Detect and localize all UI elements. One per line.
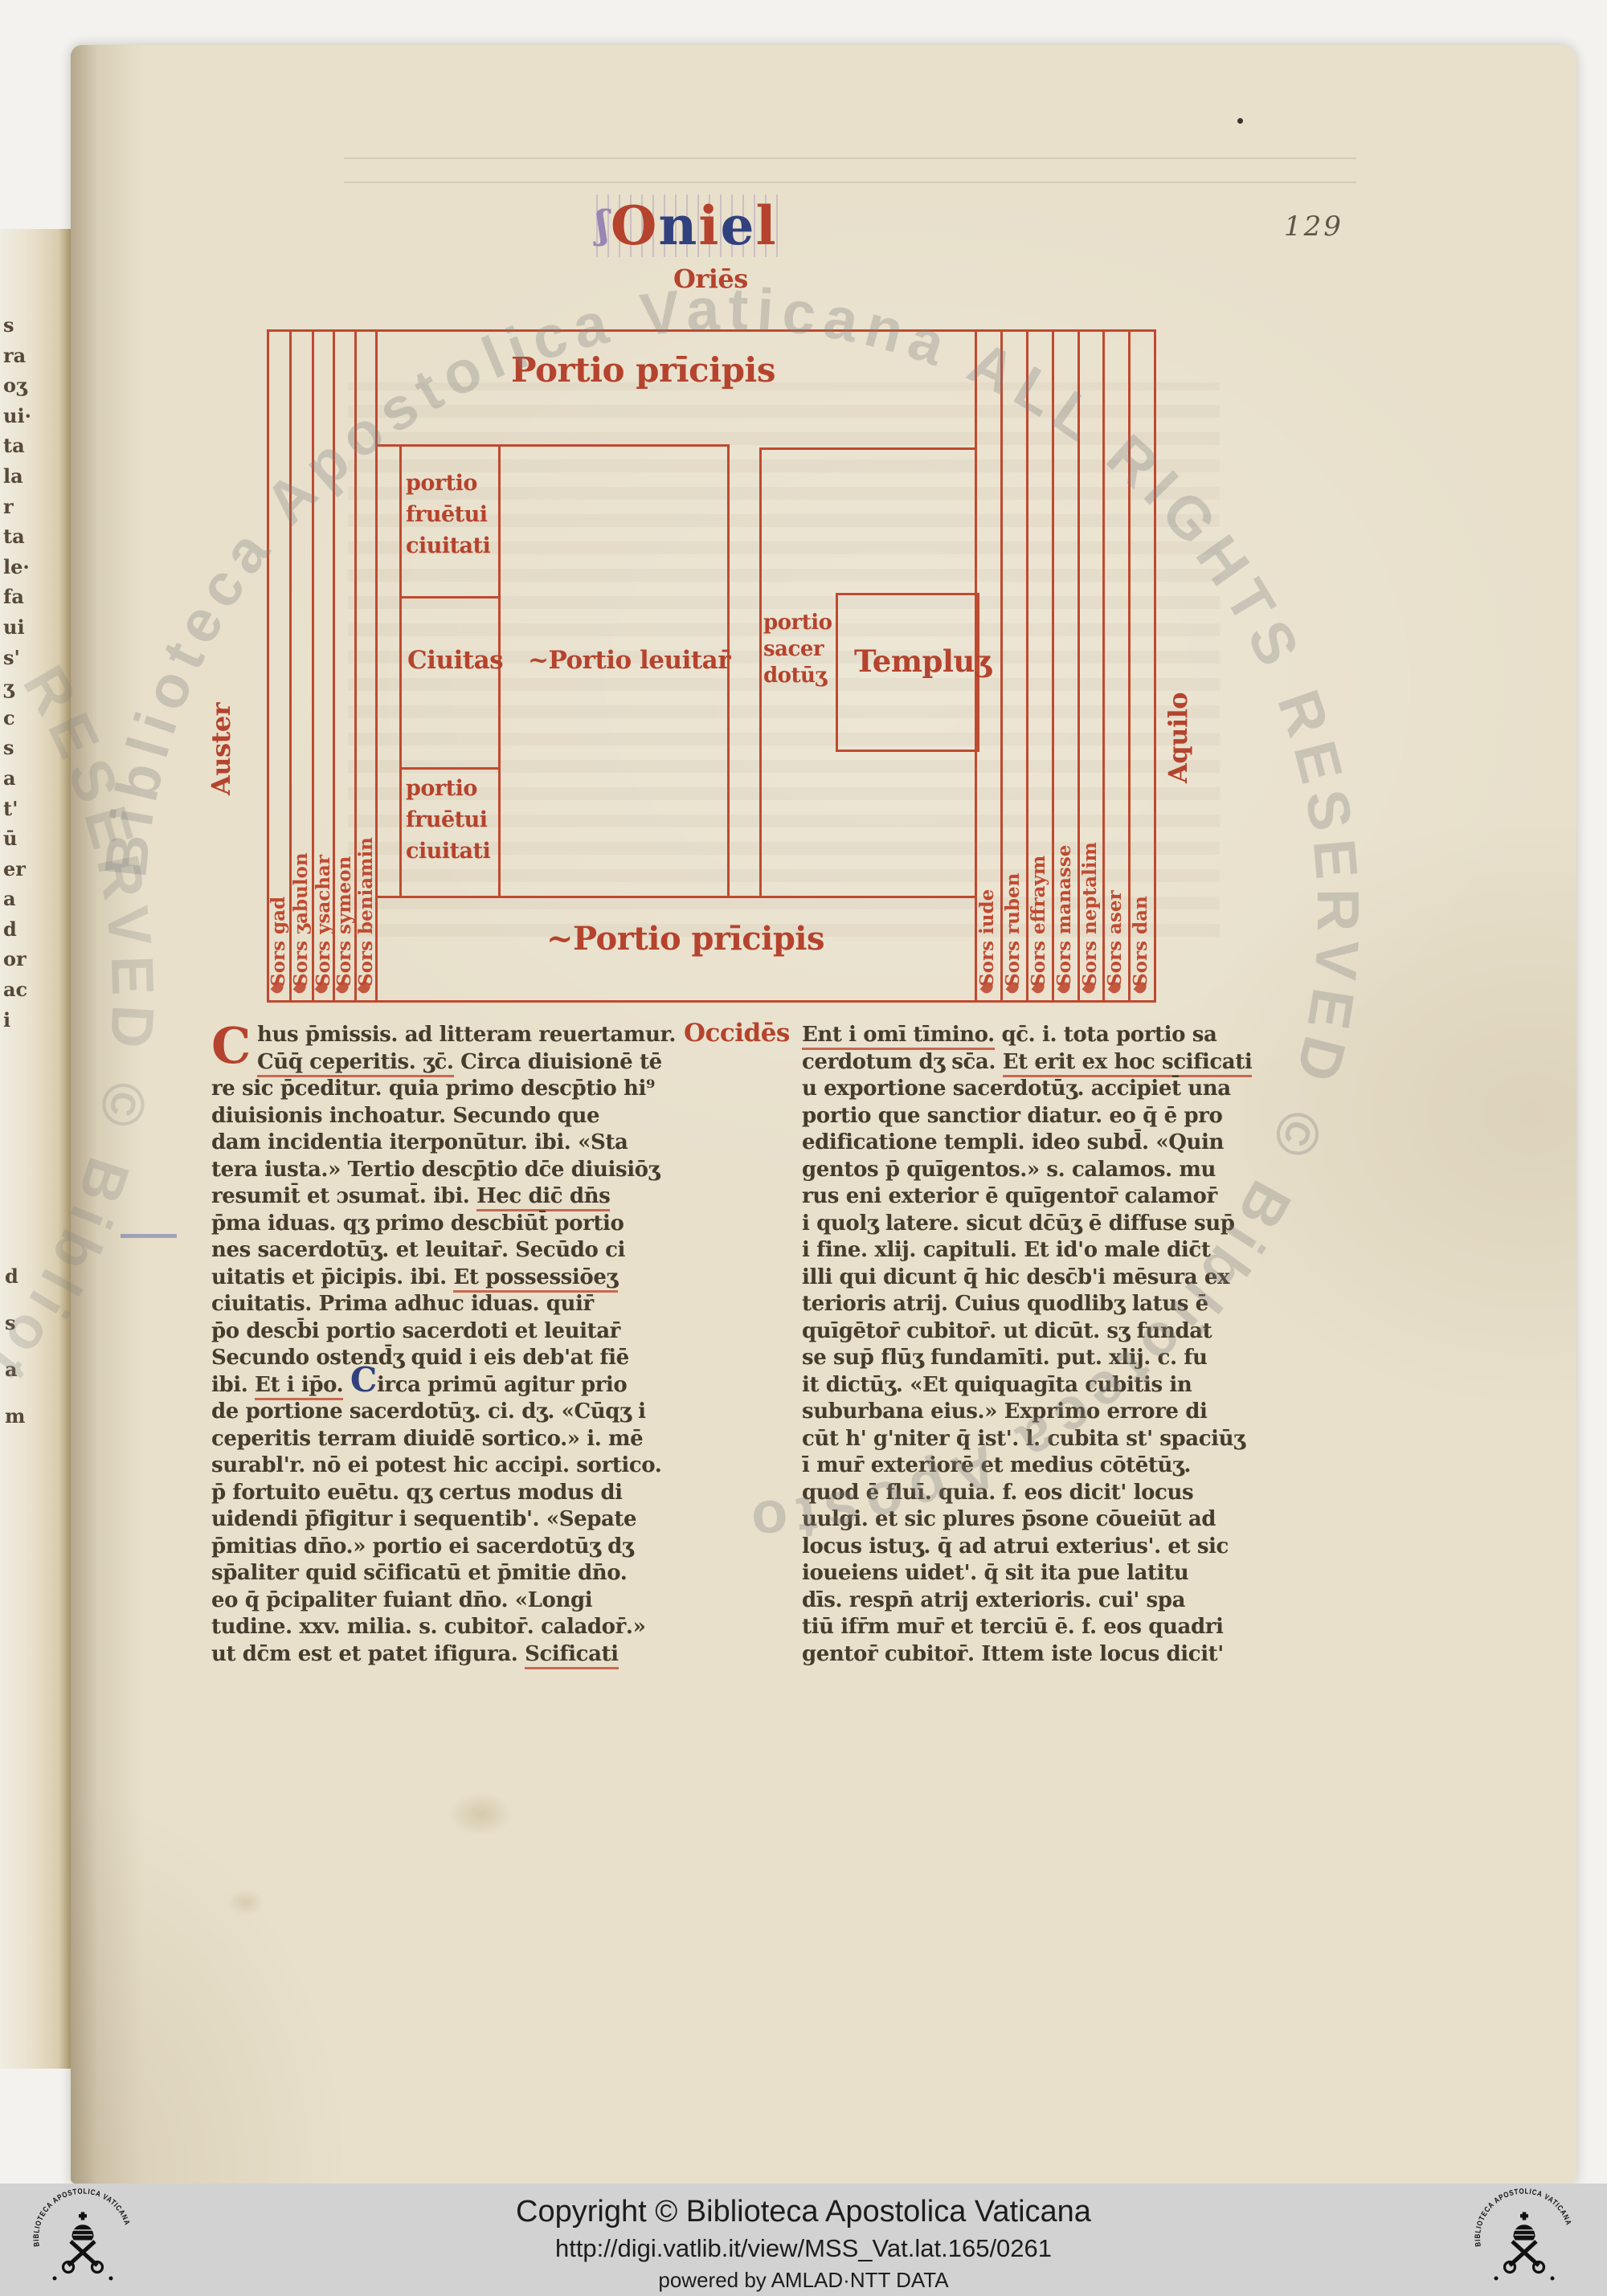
- diagram-label-oriens: Oriēs: [673, 264, 748, 294]
- margin-mark: [121, 1234, 177, 1238]
- diagram-line: [399, 444, 402, 896]
- ornate-letter: n: [658, 194, 698, 257]
- parchment-page: 129 ʃOniel Oriēs: [71, 45, 1576, 2184]
- ornate-letter: i: [698, 194, 720, 257]
- text-line: sp̄aliter quid sc̄ificatū et p̄mitie dn̄…: [211, 1560, 790, 1587]
- text-line: Cūq̄ ceperitis. ʒc̄. Circa diuisionē tē: [211, 1049, 790, 1077]
- footer-url: http://digi.vatlib.it/view/MSS_Vat.lat.1…: [0, 2234, 1607, 2263]
- tribe-name: Sors ruben: [1002, 794, 1024, 987]
- footer-powered-by: powered by AMLAD·NTT DATA: [0, 2268, 1607, 2293]
- fragment-letter: oʒ: [3, 370, 31, 401]
- text-column-left: Chus p̄missis. ad litteram reuertamur.Cū…: [211, 1022, 790, 1668]
- fragment-letter: t': [3, 794, 31, 824]
- stain: [448, 1792, 513, 1836]
- text-line: u exportione sacerdotūʒ. accipiet̄ una: [802, 1076, 1380, 1103]
- tribe-name: Sors neptalim: [1079, 794, 1101, 987]
- manuscript-scan-page: sraoʒui·talartale·fauis'ʒcsat'ūeradoraci…: [0, 0, 1607, 2296]
- text-line: ut dc̄m est et patet ifigura. Scificati: [211, 1641, 790, 1669]
- text-line: nes sacerdotūʒ. et leuitar̄. Secūdo ci: [211, 1237, 790, 1264]
- fragment-letter: d: [5, 1253, 25, 1300]
- text-line: it dictūʒ. «Et quiquagīta cubitis in: [802, 1372, 1380, 1399]
- papal-keys-tiara-emblem: [53, 2212, 112, 2280]
- diagram-label-portio-fructui-top: portiofruētuiciuitati: [406, 468, 490, 562]
- tribe-name: Sors ʒabulon: [290, 794, 312, 987]
- text-line: locus istuʒ. q̄ ad atrui exterius'. et s…: [802, 1534, 1380, 1561]
- diagram-label-portio-fructui-bottom: portiofruētuiciuitati: [406, 773, 490, 867]
- diagram-label-line: ciuitati: [406, 530, 490, 562]
- fragment-letter: i: [3, 1005, 31, 1036]
- diagram-label-aquilo: Aquilo: [1163, 692, 1193, 783]
- text-line: gentos p̄ quīgentos.» s. calamos. mu: [802, 1157, 1380, 1184]
- diagram-line: [759, 447, 975, 450]
- text-line: ibi. Et i ip̄o. Circa primū agitur prio: [211, 1372, 790, 1399]
- running-title-ornate: ʃOniel: [596, 194, 778, 257]
- fragment-letter: s: [3, 310, 31, 341]
- diagram-label-line: portio: [406, 468, 490, 499]
- fragment-letter: ui·: [3, 401, 31, 431]
- text-line: terioris atrij. Cuius quodlibʒ latus ē: [802, 1291, 1380, 1318]
- papal-keys-tiara-emblem: [1495, 2212, 1554, 2280]
- diagram-label-line: fruētui: [406, 499, 490, 530]
- text-line: edificatione templi. ideo subd̄. «Quin: [802, 1130, 1380, 1157]
- diagram-label-portio-sacerdotum: portiosacerdotūʒ: [763, 610, 832, 689]
- ornate-letter: l: [755, 194, 777, 257]
- blue-initial: C: [350, 1360, 377, 1399]
- text-line: quod ē fluī. quia. f. eos dicit' locus: [802, 1480, 1380, 1507]
- ornate-letter: O: [611, 194, 659, 257]
- fragment-letter: s: [3, 733, 31, 763]
- text-line: hus p̄missis. ad litteram reuertamur.: [211, 1022, 790, 1049]
- tribe-name: Sors aser: [1104, 794, 1126, 987]
- tribe-name: Sors ysachar: [313, 794, 334, 987]
- text-line: p̄mitias dn̄o.» portio ei sacerdotūʒ dʒ: [211, 1534, 790, 1561]
- text-line: ioueiens uidet'. q̄ sit ita pue latitu: [802, 1560, 1380, 1587]
- footer-bar: Copyright © Biblioteca Apostolica Vatica…: [0, 2184, 1607, 2296]
- text-line: ceperitis terram diuidē sortico.» i. mē: [211, 1426, 790, 1453]
- fragment-letter: or: [3, 944, 31, 974]
- diagram-label-line: portio: [763, 610, 832, 636]
- text-line: uidendi p̄figitur i sequentib'. «Sepate: [211, 1506, 790, 1534]
- fragment-letter: er: [3, 854, 31, 884]
- text-line: tiū ifr̄m mur̄ et terciū ē. f. eos quadr…: [802, 1614, 1380, 1641]
- fragment-letter: la: [3, 461, 31, 492]
- text-line: p̄ fortuito euētu. qʒ certus modus di: [211, 1480, 790, 1507]
- text-line: i quolʒ latere. sicut dc̄ūʒ ē diffuse su…: [802, 1211, 1380, 1238]
- fragment-letter: d: [3, 914, 31, 945]
- fragment-letter: c: [3, 703, 31, 733]
- ink-speck: [1237, 118, 1243, 124]
- diagram-line: [399, 596, 498, 599]
- footer-copyright: Copyright © Biblioteca Apostolica Vatica…: [0, 2195, 1607, 2229]
- diagram-line: [267, 1000, 1154, 1003]
- text-line: cūt h' g'niter q̄ ist'. l. cubita st' sp…: [802, 1426, 1380, 1453]
- text-line: i fine. xlij. capituli. Et id'o male dic…: [802, 1237, 1380, 1264]
- text-line: suburbana eius.» Exprimo errore di: [802, 1399, 1380, 1426]
- text-line: resumit̄ et ɔsumat̄. ibi. Hec dic̄ dn̄s: [211, 1183, 790, 1211]
- text-line: ī mur̄ exteriorē et medius cōtētūʒ.: [802, 1452, 1380, 1480]
- fragment-letter: ʒ: [3, 672, 31, 703]
- text-line: portio que sanctior diatur. eo q̄ ē pro: [802, 1103, 1380, 1130]
- text-line: tera iusta.» Tertio descp̄tio dc̄e diuis…: [211, 1157, 790, 1184]
- folio-number: 129: [1284, 210, 1343, 243]
- vatican-library-logo-left: BIBLIOTECA APOSTOLICA VATICANA: [31, 2188, 135, 2293]
- diagram-label-templum: Templuʒ: [854, 643, 991, 679]
- fragment-letter: le·: [3, 552, 31, 582]
- facing-page-text-fragments-lower: dsam: [5, 1253, 25, 1440]
- text-line: tudine. xxv. milia. s. cubitor̄. calador…: [211, 1614, 790, 1641]
- tribe-name: Sors gad: [268, 794, 289, 987]
- diagram-line: [267, 329, 1154, 332]
- ornate-letter: e: [720, 194, 755, 257]
- text-line: p̄ma iduas. qʒ primo descbiūt̄ portio: [211, 1211, 790, 1238]
- fragment-letter: m: [5, 1393, 25, 1440]
- text-line: eo q̄ p̄cipaliter fuiant dn̄o. «Longi: [211, 1587, 790, 1615]
- tribe-name: Sors manasse: [1053, 794, 1075, 987]
- fragment-letter: fa: [3, 582, 31, 612]
- diagram-label-portio-levitarum: ~Portio leuitar̄: [528, 646, 730, 675]
- text-line: illi qui dicunt q̄ hic desc̄b'i mēsura e…: [802, 1264, 1380, 1292]
- fragment-letter: s': [3, 643, 31, 673]
- facing-page-text-fragments: sraoʒui·talartale·fauis'ʒcsat'ūeradoraci: [3, 310, 31, 1035]
- text-line: p̄o descb̄i portio sacerdoti et leuitar̄: [211, 1318, 790, 1346]
- diagram-label-line: portio: [406, 773, 490, 804]
- diagram-label-line: fruētui: [406, 804, 490, 835]
- ruling-line: [344, 157, 1356, 159]
- stain: [227, 1889, 264, 1916]
- diagram-label-portio-principis-bottom: ~Portio prīcipis: [546, 920, 824, 958]
- diagram-label-portio-principis-top: Portio prīcipis: [511, 350, 775, 390]
- fragment-letter: s: [5, 1300, 25, 1346]
- diagram-line: [375, 896, 975, 898]
- vatican-library-logo-right: BIBLIOTECA APOSTOLICA VATICANA: [1472, 2188, 1576, 2293]
- text-column-right: Ent i omī tīmino. qc̄. i. tota portio sa…: [802, 1022, 1380, 1668]
- text-line: uulgi. et sic plures p̄sone cōueiūt ad: [802, 1506, 1380, 1534]
- diagram-line: [399, 767, 498, 770]
- fragment-letter: ta: [3, 521, 31, 552]
- text-line: Secundo ostend̄ʒ quid i eis deb'at fiē: [211, 1345, 790, 1372]
- fragment-letter: a: [3, 763, 31, 794]
- text-line: re sic p̄ceditur. quia primo descp̄tio h…: [211, 1076, 790, 1103]
- text-line: diuisionis inchoatur. Secundo que: [211, 1103, 790, 1130]
- fragment-letter: r: [3, 492, 31, 522]
- text-line: rus eni exterior ē quīgentor̄ calamor̄: [802, 1183, 1380, 1211]
- diagram-label-line: ciuitati: [406, 835, 490, 867]
- diagram-label-line: sacer: [763, 636, 832, 663]
- diagram-line: [378, 444, 727, 447]
- text-line: surabl'r. nō ei potest hic accipi. sorti…: [211, 1452, 790, 1480]
- rubricated-initial: C: [211, 1023, 251, 1068]
- diagram-label-civitas: Ciuitas: [407, 646, 503, 675]
- ornate-letter: ʃ: [596, 202, 611, 247]
- fragment-letter: ui: [3, 612, 31, 643]
- tribe-name: Sors symeon: [333, 794, 355, 987]
- tribe-name: Sors beniamin: [355, 794, 377, 987]
- diagram-line: [759, 447, 762, 896]
- diagram-line: [1154, 329, 1156, 1003]
- text-line: cerdotum dʒ sc̄a. Et erit ex hoc scifica…: [802, 1049, 1380, 1077]
- text-line: dam incidentia iterponūtur. ibi. «Sta: [211, 1130, 790, 1157]
- text-line: Ent i omī tīmino. qc̄. i. tota portio sa: [802, 1022, 1380, 1049]
- text-line: gentor̄ cubitor̄. Ittem iste locus dicit…: [802, 1641, 1380, 1669]
- text-line: quīgētor̄ cubitor̄. ut dicūt. sʒ fundat: [802, 1318, 1380, 1346]
- text-line: de portione sacerdotūʒ. ci. dʒ. «Cūqʒ i: [211, 1399, 790, 1426]
- tribe-name: Sors dan: [1130, 794, 1151, 987]
- text-line: uitatis et p̄icipis. ibi. Et possessiōeʒ: [211, 1264, 790, 1292]
- diagram-label-line: dotūʒ: [763, 663, 832, 689]
- text-line: dīs. respn̄ atrij exterioris. cui' spa: [802, 1587, 1380, 1615]
- fragment-letter: ū: [3, 823, 31, 854]
- fragment-letter: ac: [3, 974, 31, 1005]
- fragment-letter: a: [5, 1346, 25, 1393]
- text-line: ciuitatis. Prima adhuc iduas. quir̄: [211, 1291, 790, 1318]
- text-line: se sup̄ flūʒ fundamīti. put. xlij. c. fu: [802, 1345, 1380, 1372]
- diagram-label-auster: Auster: [206, 703, 236, 795]
- fragment-letter: ra: [3, 341, 31, 371]
- ruling-line: [344, 182, 1356, 183]
- tribe-name: Sors effraym: [1028, 794, 1049, 987]
- tribe-name: Sors iude: [976, 794, 998, 987]
- fragment-letter: a: [3, 884, 31, 914]
- fragment-letter: ta: [3, 431, 31, 461]
